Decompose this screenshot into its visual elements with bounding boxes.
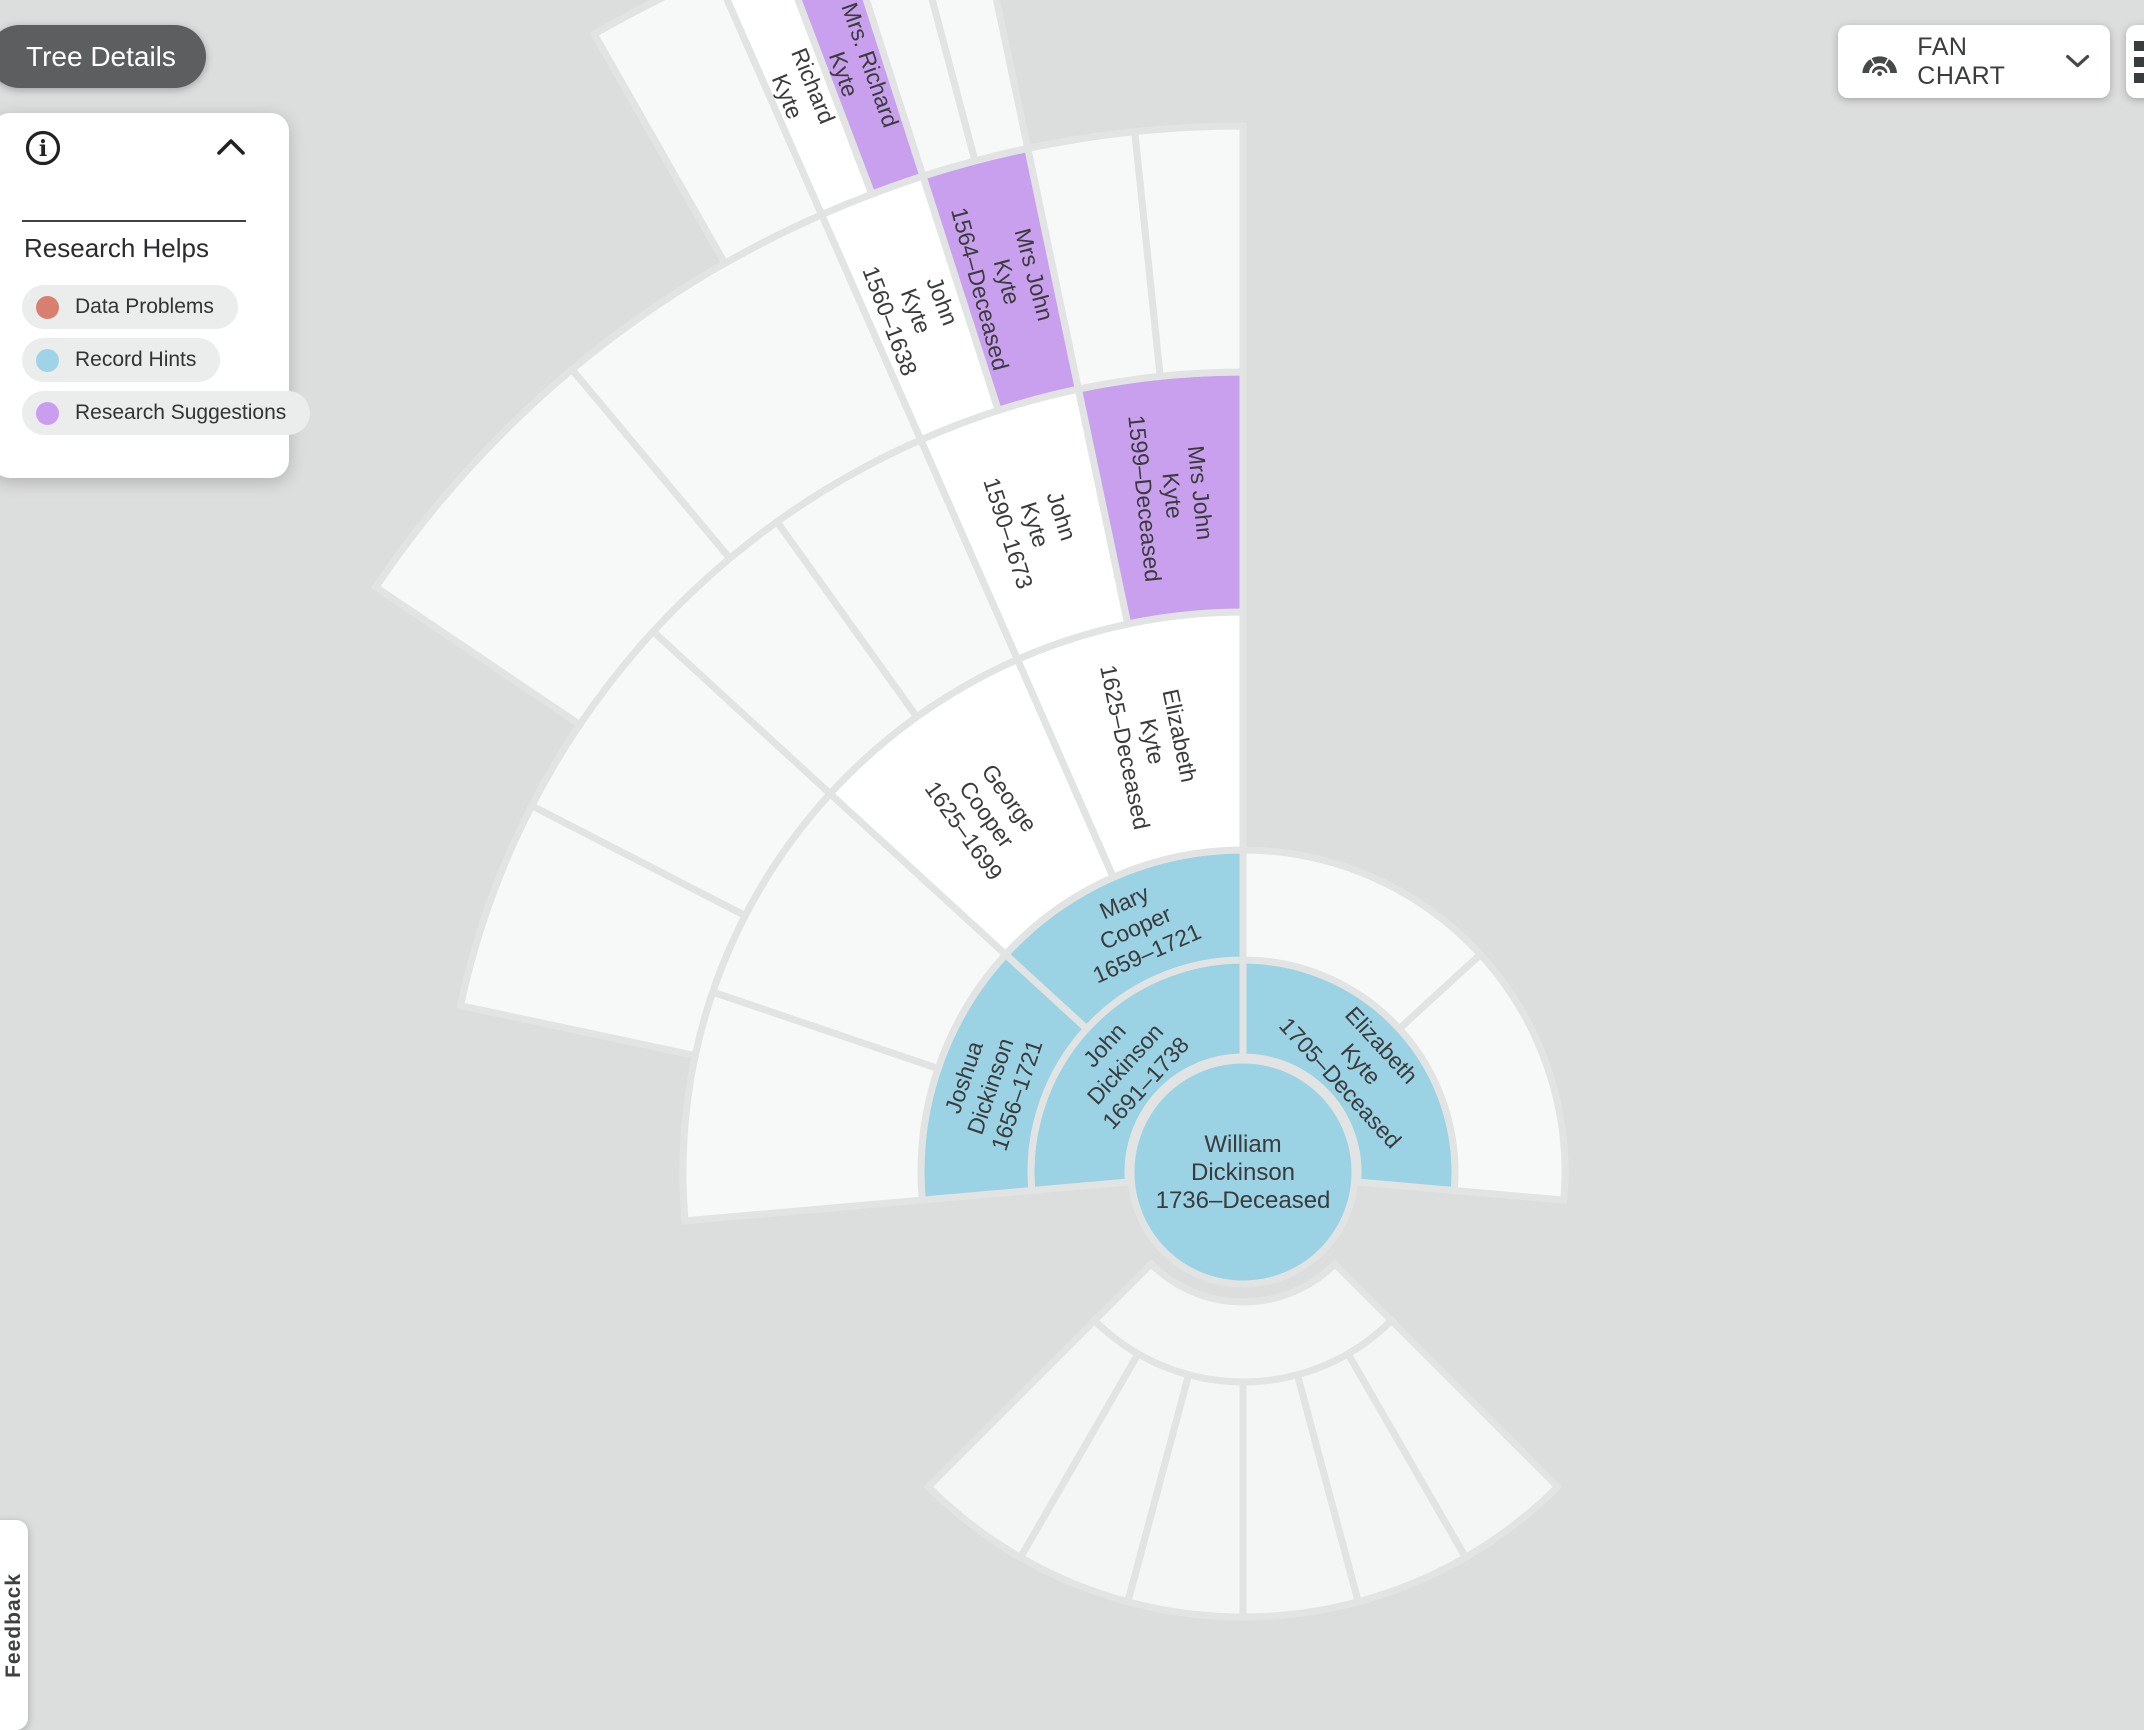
- panel-title: Research Helps: [24, 233, 209, 264]
- svg-text:i: i: [39, 136, 47, 162]
- legend-item-label: Data Problems: [75, 295, 214, 319]
- legend-item-record-hints[interactable]: Record Hints: [22, 338, 220, 382]
- panel-divider: [22, 220, 246, 222]
- legend-item-label: Record Hints: [75, 348, 196, 372]
- legend-item-label: Research Suggestions: [75, 401, 286, 425]
- side-panel-toggle-button[interactable]: [2126, 25, 2144, 98]
- research-helps-legend: Data ProblemsRecord HintsResearch Sugges…: [22, 285, 310, 435]
- fan-chart: WilliamDickinson1736–DeceasedJohnDickins…: [0, 0, 2144, 1678]
- tree-details-label: Tree Details: [26, 41, 176, 73]
- collapse-chevron-up-icon[interactable]: [216, 137, 246, 157]
- list-icon: [2134, 41, 2144, 51]
- data-problems-dot-icon: [36, 296, 59, 319]
- feedback-tab[interactable]: Feedback: [0, 1520, 28, 1730]
- fan-chart-page: { "header": { "tree_details_label": "Tre…: [0, 0, 2144, 1678]
- fan-chart-icon: [1858, 45, 1901, 79]
- view-selector-label: FAN CHART: [1917, 33, 2048, 91]
- view-selector-button[interactable]: FAN CHART: [1838, 25, 2110, 98]
- tree-details-button[interactable]: Tree Details: [0, 25, 206, 88]
- legend-item-research-suggestions[interactable]: Research Suggestions: [22, 391, 310, 435]
- chevron-down-icon: [2065, 53, 2090, 70]
- research-suggestions-dot-icon: [36, 402, 59, 425]
- info-icon[interactable]: i: [24, 129, 62, 167]
- research-helps-panel: i Research Helps Data ProblemsRecord Hin…: [0, 113, 289, 478]
- legend-item-data-problems[interactable]: Data Problems: [22, 285, 238, 329]
- record-hints-dot-icon: [36, 349, 59, 372]
- feedback-label: Feedback: [2, 1573, 26, 1678]
